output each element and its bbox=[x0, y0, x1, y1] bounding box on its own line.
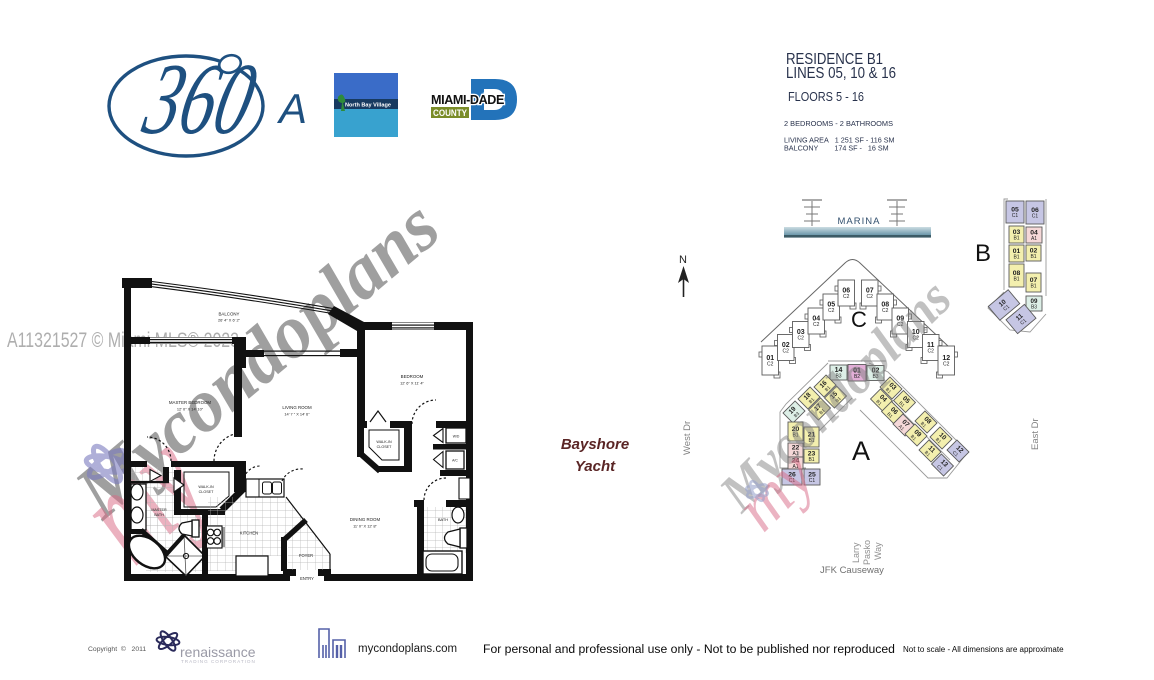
svg-text:JFK Causeway: JFK Causeway bbox=[820, 565, 884, 576]
svg-text:N: N bbox=[679, 254, 687, 266]
svg-text:DINING ROOM: DINING ROOM bbox=[350, 517, 381, 522]
svg-text:C2: C2 bbox=[767, 362, 774, 368]
svg-text:C2: C2 bbox=[928, 349, 935, 355]
svg-text:B1: B1 bbox=[1030, 254, 1036, 260]
svg-text:C2: C2 bbox=[867, 294, 874, 300]
svg-text:C1: C1 bbox=[1032, 214, 1039, 220]
svg-text:BATH: BATH bbox=[154, 513, 164, 517]
svg-text:FOYER: FOYER bbox=[299, 553, 313, 558]
svg-text:A1: A1 bbox=[1031, 236, 1037, 242]
svg-text:WALK-IN: WALK-IN bbox=[376, 440, 392, 444]
svg-text:FLOORS 5 - 16: FLOORS 5 - 16 bbox=[788, 89, 864, 104]
svg-text:Copyright © 2011: Copyright © 2011 bbox=[88, 645, 146, 653]
svg-text:W/D: W/D bbox=[453, 435, 460, 439]
svg-text:MASTER BEDROOM: MASTER BEDROOM bbox=[169, 400, 212, 405]
svg-text:C2: C2 bbox=[843, 294, 850, 300]
svg-text:TRADING CORPORATION: TRADING CORPORATION bbox=[181, 659, 256, 664]
svg-text:WALK-IN: WALK-IN bbox=[198, 485, 214, 489]
svg-text:West Dr: West Dr bbox=[682, 421, 693, 455]
svg-text:LINES 05, 10 & 16: LINES 05, 10 & 16 bbox=[786, 65, 896, 82]
svg-text:14' 7 " X 14' 6": 14' 7 " X 14' 6" bbox=[284, 412, 310, 417]
svg-text:A: A bbox=[276, 85, 307, 132]
svg-text:2 BEDROOMS - 2 BATHROOMS: 2 BEDROOMS - 2 BATHROOMS bbox=[784, 119, 893, 128]
svg-text:BALCONY: BALCONY bbox=[219, 312, 240, 317]
svg-text:B: B bbox=[975, 240, 991, 267]
svg-text:For personal and professional: For personal and professional use only -… bbox=[483, 642, 895, 656]
svg-text:Not to scale - All dimensions: Not to scale - All dimensions are approx… bbox=[903, 645, 1064, 654]
svg-text:MIAMI-DADE: MIAMI-DADE bbox=[431, 93, 504, 107]
svg-text:B1: B1 bbox=[1030, 284, 1036, 290]
svg-text:26' 4" X 6' 2": 26' 4" X 6' 2" bbox=[218, 318, 241, 323]
svg-text:C2: C2 bbox=[813, 322, 820, 328]
svg-text:Larry: Larry bbox=[851, 542, 861, 563]
svg-text:Yacht: Yacht bbox=[575, 458, 616, 475]
svg-text:C2: C2 bbox=[828, 308, 835, 314]
svg-text:B1: B1 bbox=[1013, 277, 1019, 283]
svg-text:LIVING ROOM: LIVING ROOM bbox=[282, 405, 312, 410]
svg-text:Pasko: Pasko bbox=[862, 540, 872, 565]
svg-text:C1: C1 bbox=[1012, 213, 1019, 219]
svg-text:ENTRY: ENTRY bbox=[300, 576, 314, 581]
svg-text:C2: C2 bbox=[943, 362, 950, 368]
svg-text:B3: B3 bbox=[1031, 305, 1037, 311]
svg-text:12' 0" X 14' 10": 12' 0" X 14' 10" bbox=[177, 407, 204, 412]
svg-text:COUNTY: COUNTY bbox=[433, 108, 468, 119]
svg-text:B1: B1 bbox=[1013, 236, 1019, 242]
svg-text:East Dr: East Dr bbox=[1030, 418, 1041, 450]
svg-text:North Bay Village: North Bay Village bbox=[345, 103, 391, 109]
svg-text:A: A bbox=[852, 436, 870, 466]
svg-text:BALCONY 174 SF - 16 S: BALCONY 174 SF - 16 SM bbox=[784, 144, 889, 153]
svg-text:11' 0" X 12' 8": 11' 0" X 12' 8" bbox=[353, 524, 377, 529]
svg-text:A/C: A/C bbox=[452, 459, 458, 463]
svg-text:Way: Way bbox=[873, 542, 883, 560]
svg-text:Bayshore: Bayshore bbox=[561, 436, 629, 453]
svg-text:BATH: BATH bbox=[438, 517, 448, 522]
svg-text:BEDROOM: BEDROOM bbox=[401, 374, 424, 379]
svg-text:KITCHEN: KITCHEN bbox=[240, 531, 258, 536]
svg-text:CLOSET: CLOSET bbox=[199, 490, 215, 494]
svg-text:MARINA: MARINA bbox=[838, 216, 881, 227]
svg-text:12' 6" X 11' 4": 12' 6" X 11' 4" bbox=[400, 381, 424, 386]
svg-text:C2: C2 bbox=[798, 336, 805, 342]
svg-text:renaissance: renaissance bbox=[180, 644, 256, 660]
svg-text:B1: B1 bbox=[1013, 255, 1019, 261]
svg-text:CLOSET: CLOSET bbox=[377, 445, 393, 449]
svg-text:C2: C2 bbox=[783, 349, 790, 355]
svg-text:MASTER: MASTER bbox=[151, 508, 167, 512]
svg-text:mycondoplans.com: mycondoplans.com bbox=[358, 643, 457, 655]
